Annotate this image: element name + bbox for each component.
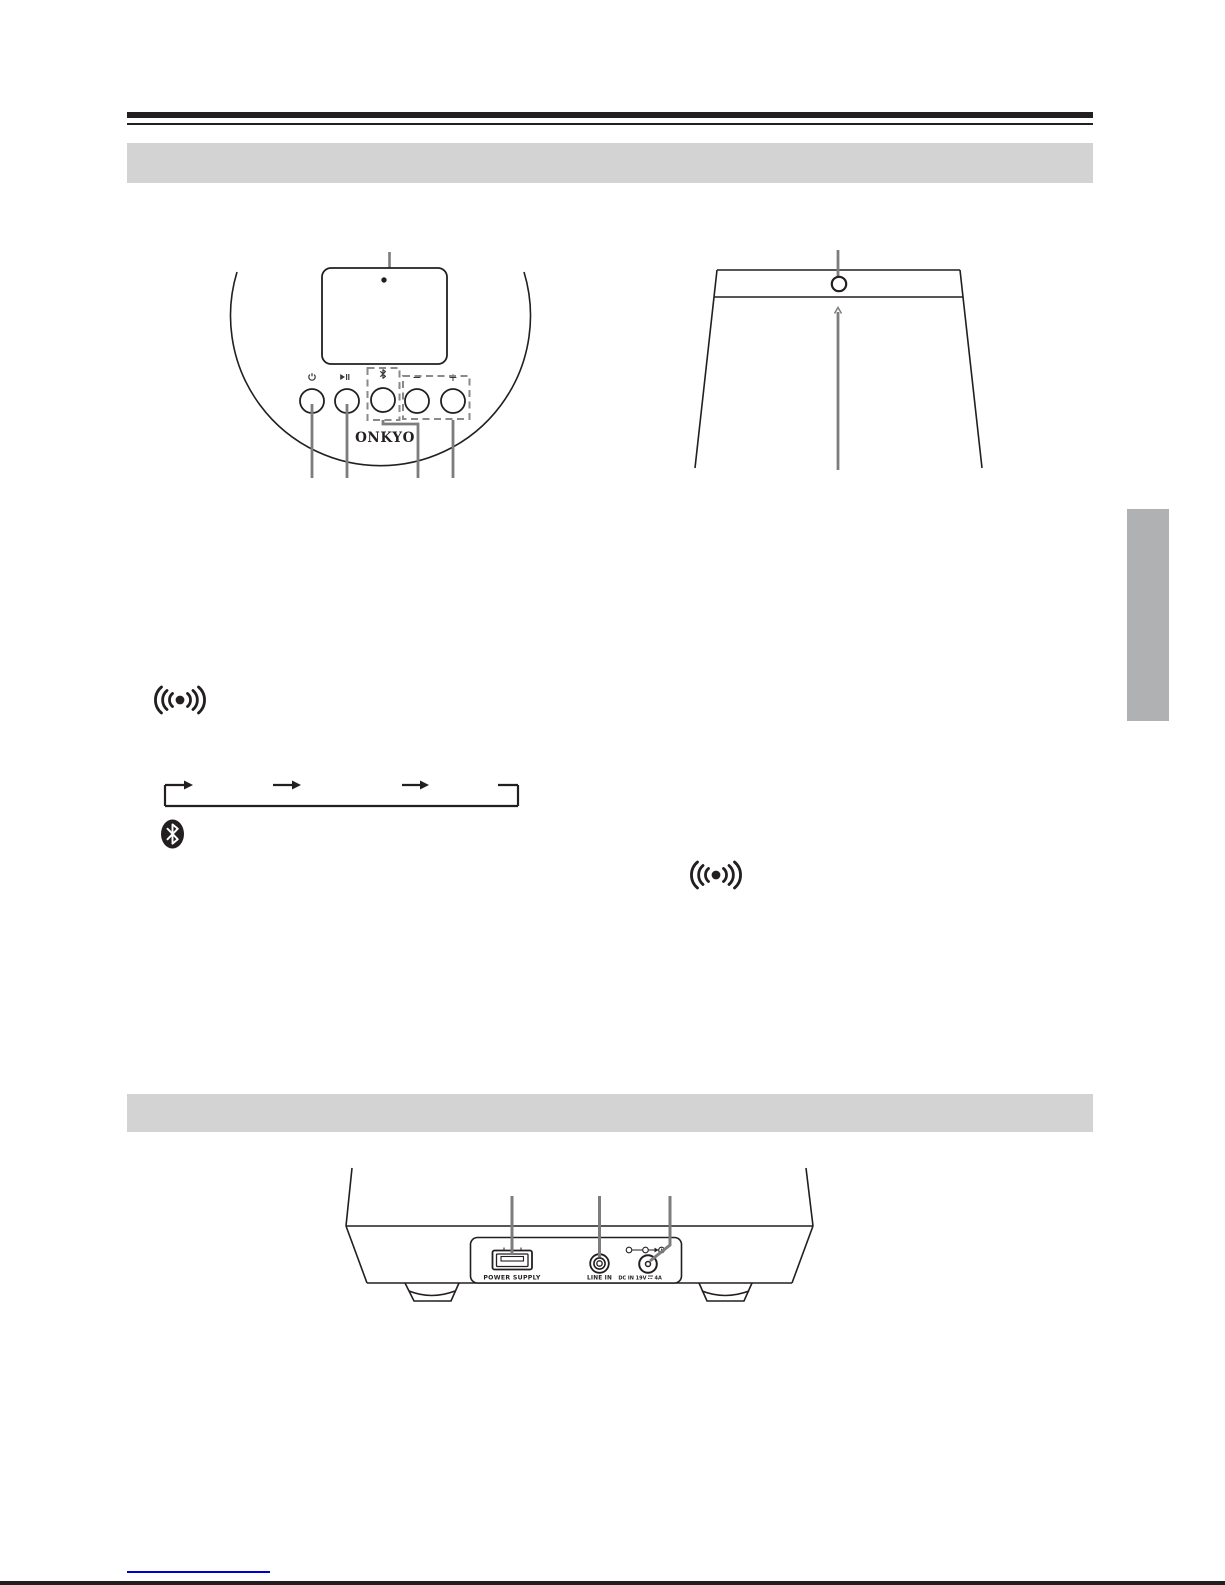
plus-icon: + (448, 371, 457, 384)
minus-icon: − (412, 371, 421, 384)
right-foot-curve (702, 1291, 749, 1296)
power-icon (309, 373, 315, 380)
rear-panel-diagram: POWER SUPPLY LINE IN DC IN 19V (335, 1160, 825, 1310)
bluetooth-callout-line (383, 420, 418, 478)
arrow-right-icon (420, 781, 429, 790)
rear-right-side (792, 1226, 813, 1283)
bluetooth-button (371, 388, 395, 412)
rear-left-side (346, 1226, 367, 1283)
front-panel-diagram: − + ONKYO (200, 245, 570, 485)
svg-text:DC IN 19V: DC IN 19V (618, 1276, 646, 1282)
top-rule-thin (127, 123, 1093, 125)
section-banner-bottom (127, 1094, 1093, 1132)
bluetooth-badge-icon (159, 818, 186, 850)
right-side-line (960, 270, 982, 468)
top-rule-thick (127, 112, 1093, 118)
bottom-rule (0, 1581, 1225, 1585)
rear-top-right-edge (806, 1168, 813, 1226)
arrow-right-icon (184, 781, 193, 790)
led-indicator (381, 277, 386, 282)
usb-port-label: POWER SUPPLY (483, 1275, 541, 1282)
volume-down-button (405, 389, 429, 413)
left-foot-curve (409, 1291, 455, 1296)
arrow-right-icon (292, 781, 301, 790)
top-panel-diagram (680, 240, 1000, 480)
side-section-tab (1127, 509, 1169, 721)
left-side-line (695, 270, 717, 468)
section-banner-top (127, 143, 1093, 183)
dc-in-label: DC IN 19V 4A (618, 1276, 662, 1282)
brand-logo: ONKYO (355, 430, 415, 446)
cycle-diagram (155, 770, 535, 815)
play-pause-icon (340, 374, 349, 380)
footer-link-underline[interactable] (127, 1571, 270, 1573)
wireless-icon (692, 858, 740, 892)
wireless-icon (156, 684, 204, 716)
volume-up-button (441, 389, 465, 413)
manual-page: − + ONKYO (0, 0, 1225, 1585)
svg-text:4A: 4A (655, 1276, 662, 1282)
line-in-label: LINE IN (587, 1276, 612, 1282)
power-hole (832, 277, 846, 291)
bluetooth-icon (381, 370, 386, 379)
rear-top-left-edge (346, 1168, 352, 1226)
